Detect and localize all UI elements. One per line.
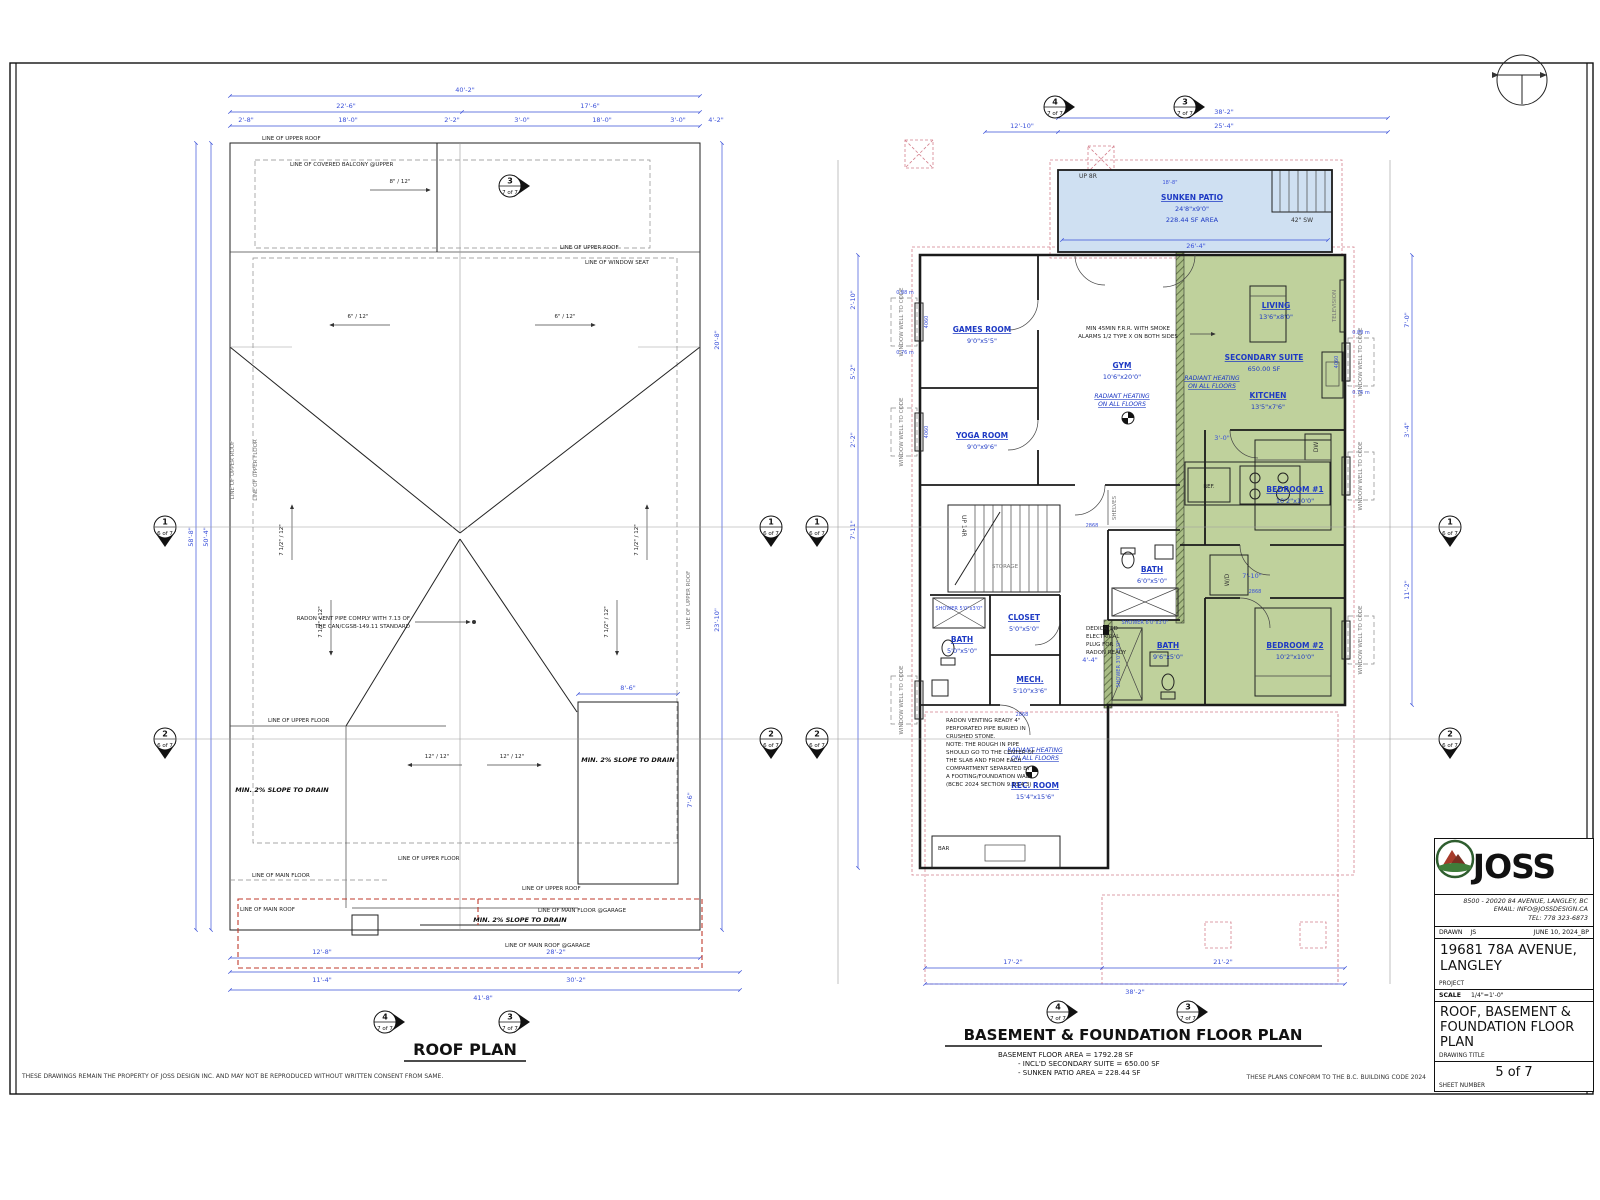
svg-text:2: 2 xyxy=(768,730,774,739)
svg-text:0.76 m: 0.76 m xyxy=(896,350,914,356)
section-marker: 16 of 7 xyxy=(154,516,176,547)
svg-text:3: 3 xyxy=(507,177,513,186)
svg-text:9'6"x5'0": 9'6"x5'0" xyxy=(1153,653,1183,661)
title-block: JOSS 8500 - 20020 84 AVENUE, LANGLEY, BC… xyxy=(1434,838,1594,1092)
svg-text:21'-2": 21'-2" xyxy=(1213,958,1233,966)
svg-text:DW: DW xyxy=(1313,442,1320,453)
basement-area-note: - SUNKEN PATIO AREA = 228.44 SF xyxy=(1018,1069,1141,1077)
svg-text:WINDOW WELL TO CODE: WINDOW WELL TO CODE xyxy=(899,665,905,735)
svg-text:25'-4": 25'-4" xyxy=(1214,122,1234,130)
basement-plan-title: BASEMENT & FOUNDATION FLOOR PLAN xyxy=(964,1026,1303,1044)
svg-text:BEDROOM #2: BEDROOM #2 xyxy=(1266,641,1323,650)
svg-text:MIN. 2% SLOPE TO DRAIN: MIN. 2% SLOPE TO DRAIN xyxy=(581,756,675,764)
stairs: UP 14R STORAGE xyxy=(948,505,1060,592)
svg-text:4'-4": 4'-4" xyxy=(1082,656,1097,664)
svg-text:6 of 7: 6 of 7 xyxy=(809,743,825,749)
up8r-label: UP 8R xyxy=(1079,173,1097,180)
svg-text:7 1/2" / 12": 7 1/2" / 12" xyxy=(279,524,285,556)
drain-symbol xyxy=(1122,412,1134,424)
svg-text:RADIANT HEATING: RADIANT HEATING xyxy=(1094,393,1150,400)
svg-text:6" / 12": 6" / 12" xyxy=(555,314,576,320)
svg-text:6 of 7: 6 of 7 xyxy=(1442,531,1458,537)
drawing-title: ROOF, BASEMENT & FOUNDATION FLOOR PLAN xyxy=(1440,1006,1588,1051)
svg-text:7'-10": 7'-10" xyxy=(1242,572,1262,580)
svg-text:LINE OF UPPER ROOF: LINE OF UPPER ROOF xyxy=(522,886,581,892)
section-marker: 47 of 7 xyxy=(1044,96,1075,118)
svg-text:3: 3 xyxy=(1185,1003,1191,1012)
svg-text:LINE OF MAIN FLOOR: LINE OF MAIN FLOOR xyxy=(252,873,310,879)
svg-text:SHOWER 6'0"x3'0": SHOWER 6'0"x3'0" xyxy=(1121,620,1168,626)
address-line: EMAIL: INFO@JOSSDESIGN.CA xyxy=(1440,906,1588,915)
svg-text:YOGA ROOM: YOGA ROOM xyxy=(955,431,1008,440)
svg-text:10'6"x20'0": 10'6"x20'0" xyxy=(1103,373,1141,381)
svg-text:10'2"x10'0": 10'2"x10'0" xyxy=(1276,497,1314,505)
svg-text:7 of 7: 7 of 7 xyxy=(502,1026,518,1032)
svg-text:0.88 m: 0.88 m xyxy=(896,290,914,296)
svg-text:15'4"x15'6": 15'4"x15'6" xyxy=(1016,793,1054,801)
svg-text:7 of 7: 7 of 7 xyxy=(502,190,518,196)
scale-row: SCALE 1/4"=1'-0" xyxy=(1435,990,1593,1003)
svg-text:11'-4": 11'-4" xyxy=(312,976,332,984)
svg-text:41'-8": 41'-8" xyxy=(473,994,493,1002)
svg-text:WINDOW WELL TO CODE: WINDOW WELL TO CODE xyxy=(899,397,905,467)
svg-text:WINDOW WELL TO CODE: WINDOW WELL TO CODE xyxy=(1358,605,1364,675)
svg-text:ALARMS 1/2 TYPE X ON BOTH SIDE: ALARMS 1/2 TYPE X ON BOTH SIDES xyxy=(1078,334,1178,340)
svg-text:LINE OF MAIN ROOF @GARAGE: LINE OF MAIN ROOF @GARAGE xyxy=(505,943,591,949)
svg-text:3'-4": 3'-4" xyxy=(1403,422,1411,437)
svg-text:650.00 SF: 650.00 SF xyxy=(1248,365,1281,373)
svg-text:40'-2": 40'-2" xyxy=(455,86,475,94)
section-marker: 37 of 7 xyxy=(499,1011,530,1033)
date-value: JUNE 10, 2024_BP xyxy=(1534,929,1589,936)
svg-text:7 of 7: 7 of 7 xyxy=(1050,1016,1066,1022)
svg-text:1: 1 xyxy=(1447,518,1453,527)
project-label: PROJECT xyxy=(1439,981,1464,987)
svg-text:7'-11": 7'-11" xyxy=(849,520,857,540)
svg-text:SUNKEN PATIO: SUNKEN PATIO xyxy=(1161,193,1223,202)
svg-text:26'-4": 26'-4" xyxy=(1186,242,1206,250)
svg-text:BAR: BAR xyxy=(938,846,950,852)
svg-text:LINE OF UPPER FLOOR: LINE OF UPPER FLOOR xyxy=(268,718,330,724)
scale-label: SCALE xyxy=(1439,992,1461,999)
svg-text:MECH.: MECH. xyxy=(1016,675,1043,684)
svg-text:12" / 12": 12" / 12" xyxy=(425,754,449,760)
section-marker: 26 of 7 xyxy=(760,728,782,759)
svg-text:LIVING: LIVING xyxy=(1262,301,1291,310)
section-marker: 16 of 7 xyxy=(1439,516,1461,547)
svg-text:THE SLAB AND FROM EACH: THE SLAB AND FROM EACH xyxy=(945,758,1021,764)
section-marker: 37 of 7 xyxy=(1174,96,1205,118)
sheet-frame xyxy=(10,63,1593,1094)
roof-slopes: 8" / 12" 6" / 12" 6" / 12" 7 1/2" / 12" … xyxy=(279,179,647,765)
roof-plan-title: ROOF PLAN xyxy=(413,1040,517,1059)
svg-text:BATH: BATH xyxy=(1157,641,1179,650)
svg-text:2'-8": 2'-8" xyxy=(238,116,253,124)
scale-value: 1/4"=1'-0" xyxy=(1471,992,1504,999)
project-address: 19681 78A AVENUE, LANGLEY xyxy=(1440,943,1588,974)
svg-text:BATH: BATH xyxy=(951,635,973,644)
section-marker: 37 of 7 xyxy=(499,175,530,197)
svg-text:THE CAN/CGSB-149.11 STANDARD: THE CAN/CGSB-149.11 STANDARD xyxy=(314,624,410,630)
svg-text:REF.: REF. xyxy=(1203,484,1215,490)
svg-text:7 of 7: 7 of 7 xyxy=(1177,111,1193,117)
svg-text:ON ALL FLOORS: ON ALL FLOORS xyxy=(1098,401,1146,408)
svg-text:12'-8": 12'-8" xyxy=(312,948,332,956)
svg-text:2'-2": 2'-2" xyxy=(849,432,857,447)
joss-logo-icon xyxy=(1435,839,1475,879)
svg-text:28'-2": 28'-2" xyxy=(546,948,566,956)
svg-text:MIN. 2% SLOPE TO DRAIN: MIN. 2% SLOPE TO DRAIN xyxy=(235,786,329,794)
svg-text:MIN 45MIN F.R.R. WITH SMOKE: MIN 45MIN F.R.R. WITH SMOKE xyxy=(1086,326,1170,332)
drawing-title-label: DRAWING TITLE xyxy=(1439,1053,1485,1059)
svg-text:LINE OF MAIN FLOOR @GARAGE: LINE OF MAIN FLOOR @GARAGE xyxy=(538,908,627,914)
svg-text:7'-6": 7'-6" xyxy=(686,792,694,807)
svg-text:LINE OF UPPER ROOF: LINE OF UPPER ROOF xyxy=(560,245,619,251)
svg-text:3'-0": 3'-0" xyxy=(1214,434,1229,442)
svg-text:18'-0": 18'-0" xyxy=(592,116,612,124)
ownership-disclaimer: THESE DRAWINGS REMAIN THE PROPERTY OF JO… xyxy=(21,1073,443,1080)
svg-text:6'0"x5'0": 6'0"x5'0" xyxy=(1137,577,1167,585)
svg-text:18'-8": 18'-8" xyxy=(1162,180,1177,186)
section-marker: 26 of 7 xyxy=(1439,728,1461,759)
svg-text:CLOSET: CLOSET xyxy=(1008,613,1041,622)
svg-text:(BCBC 2024 SECTION 9.13.4.3): (BCBC 2024 SECTION 9.13.4.3) xyxy=(946,782,1032,788)
svg-text:COMPARTMENT SEPARATED BY: COMPARTMENT SEPARATED BY xyxy=(946,766,1031,772)
svg-text:7 1/2" / 12": 7 1/2" / 12" xyxy=(634,524,640,556)
svg-text:50'-4": 50'-4" xyxy=(202,527,210,547)
drawn-row: DRAWN JS JUNE 10, 2024_BP xyxy=(1435,927,1593,940)
svg-text:LINE OF UPPER FLOOR: LINE OF UPPER FLOOR xyxy=(398,856,460,862)
svg-text:13'5"x7'6": 13'5"x7'6" xyxy=(1251,403,1285,411)
svg-text:LINE OF WINDOW SEAT: LINE OF WINDOW SEAT xyxy=(585,260,649,266)
svg-text:6 of 7: 6 of 7 xyxy=(809,531,825,537)
svg-text:8" / 12": 8" / 12" xyxy=(390,179,411,185)
project-row: 19681 78A AVENUE, LANGLEY PROJECT xyxy=(1435,939,1593,989)
svg-text:5'-2": 5'-2" xyxy=(849,364,857,379)
svg-text:4: 4 xyxy=(382,1013,388,1022)
logo-row: JOSS xyxy=(1435,839,1593,895)
svg-text:3'-0": 3'-0" xyxy=(670,116,685,124)
svg-text:LINE OF UPPER ROOF: LINE OF UPPER ROOF xyxy=(262,136,321,142)
svg-text:GYM: GYM xyxy=(1113,361,1132,370)
svg-text:LINE OF MAIN ROOF: LINE OF MAIN ROOF xyxy=(240,907,295,913)
svg-text:22'-6": 22'-6" xyxy=(336,102,356,110)
drawn-label: DRAWN xyxy=(1439,929,1462,936)
svg-text:20'-8": 20'-8" xyxy=(713,330,721,350)
drawn-value: JS xyxy=(1470,929,1476,936)
svg-text:A FOOTING/FOUNDATION WALL.: A FOOTING/FOUNDATION WALL. xyxy=(946,774,1034,780)
svg-text:6 of 7: 6 of 7 xyxy=(1442,743,1458,749)
svg-text:17'-2": 17'-2" xyxy=(1003,958,1023,966)
section-marker: 37 of 7 xyxy=(1177,1001,1208,1023)
svg-text:KITCHEN: KITCHEN xyxy=(1250,391,1287,400)
svg-text:9'0"x5'5": 9'0"x5'5" xyxy=(967,337,997,345)
svg-text:DEDICATED: DEDICATED xyxy=(1086,626,1118,632)
svg-text:SHOULD GO TO THE CENTER OF: SHOULD GO TO THE CENTER OF xyxy=(946,750,1035,756)
svg-text:4060: 4060 xyxy=(1334,356,1340,369)
basement-area-note: - INCL'D SECONDARY SUITE = 650.00 SF xyxy=(1018,1060,1160,1068)
svg-text:STORAGE: STORAGE xyxy=(992,564,1019,570)
svg-text:58'-8": 58'-8" xyxy=(187,527,195,547)
svg-text:SECONDARY SUITE: SECONDARY SUITE xyxy=(1225,353,1304,362)
svg-text:7 of 7: 7 of 7 xyxy=(1047,111,1063,117)
svg-text:BATH: BATH xyxy=(1141,565,1163,574)
svg-text:3: 3 xyxy=(507,1013,513,1022)
svg-text:6 of 7: 6 of 7 xyxy=(763,743,779,749)
svg-text:ELECTRICAL: ELECTRICAL xyxy=(1086,634,1120,640)
svg-text:8'-6": 8'-6" xyxy=(620,684,635,692)
basement-notes: MIN 45MIN F.R.R. WITH SMOKE ALARMS 1/2 T… xyxy=(945,326,1215,788)
svg-text:1: 1 xyxy=(162,518,168,527)
plan-canvas: 40'-2" 22'-6" 17'-6" 2'-8" 18'-0" 2'-2" … xyxy=(0,0,1600,1200)
roof-outline xyxy=(230,143,702,968)
sunken-patio: UP 8R 42" SW SUNKEN PATIO 24'8"x9'0" 228… xyxy=(1058,170,1332,252)
address-line: TEL: 778 323-6873 xyxy=(1440,915,1588,924)
svg-text:2868: 2868 xyxy=(1249,589,1262,595)
firm-address: 8500 - 20020 84 AVENUE, LANGLEY, BC EMAI… xyxy=(1435,895,1593,927)
svg-text:LINE OF UPPER FLOOR: LINE OF UPPER FLOOR xyxy=(253,439,259,501)
svg-text:RADON VENT PIPE COMPLY WITH 7.: RADON VENT PIPE COMPLY WITH 7.13 OF xyxy=(297,616,410,622)
svg-text:4: 4 xyxy=(1052,98,1058,107)
svg-text:RADON VENTING READY 4": RADON VENTING READY 4" xyxy=(946,718,1020,724)
section-marker: 47 of 7 xyxy=(374,1011,405,1033)
svg-text:WINDOW WELL TO CODE: WINDOW WELL TO CODE xyxy=(1358,441,1364,511)
basement-plan: UP 8R 42" SW SUNKEN PATIO 24'8"x9'0" 228… xyxy=(838,108,1412,1077)
svg-text:3'-0": 3'-0" xyxy=(514,116,529,124)
drawing-sheet: { "sheet": { "disclaimer": "THESE DRAWIN… xyxy=(0,0,1600,1200)
svg-text:W/D: W/D xyxy=(1224,573,1231,586)
section-marker: 16 of 7 xyxy=(806,516,828,547)
svg-text:1: 1 xyxy=(814,518,820,527)
svg-text:SHELVES: SHELVES xyxy=(1112,495,1118,520)
svg-text:4060: 4060 xyxy=(924,316,930,329)
brand-name: JOSS xyxy=(1473,847,1555,886)
svg-text:3: 3 xyxy=(1182,98,1188,107)
roof-plan: 40'-2" 22'-6" 17'-6" 2'-8" 18'-0" 2'-2" … xyxy=(187,86,740,1061)
svg-text:WINDOW WELL TO CODE: WINDOW WELL TO CODE xyxy=(899,287,905,357)
svg-text:GAMES ROOM: GAMES ROOM xyxy=(953,325,1012,334)
svg-text:10'2"x10'0": 10'2"x10'0" xyxy=(1276,653,1314,661)
svg-text:BEDROOM #1: BEDROOM #1 xyxy=(1266,485,1323,494)
drawing-title-row: ROOF, BASEMENT & FOUNDATION FLOOR PLAN D… xyxy=(1435,1002,1593,1062)
sheet-number-label: SHEET NUMBER xyxy=(1439,1083,1485,1089)
svg-text:4'-2": 4'-2" xyxy=(708,116,723,124)
svg-text:2'-10": 2'-10" xyxy=(849,290,857,310)
svg-text:24'8"x9'0": 24'8"x9'0" xyxy=(1175,205,1209,213)
svg-text:38'-2": 38'-2" xyxy=(1214,108,1234,116)
section-marker: 26 of 7 xyxy=(154,728,176,759)
sw42-label: 42" SW xyxy=(1291,217,1313,224)
svg-text:7'-0": 7'-0" xyxy=(1403,312,1411,327)
svg-text:LINE OF COVERED BALCONY @UPPER: LINE OF COVERED BALCONY @UPPER xyxy=(290,162,393,168)
svg-text:9'0"x9'6": 9'0"x9'6" xyxy=(967,443,997,451)
svg-text:2'-2": 2'-2" xyxy=(444,116,459,124)
svg-text:4: 4 xyxy=(1055,1003,1061,1012)
svg-text:30'-2": 30'-2" xyxy=(566,976,586,984)
svg-text:228.44 SF AREA: 228.44 SF AREA xyxy=(1166,216,1219,224)
secondary-suite-area xyxy=(1108,255,1345,705)
svg-text:2: 2 xyxy=(814,730,820,739)
svg-text:SHOWER 5'0"x3'0": SHOWER 5'0"x3'0" xyxy=(935,606,982,612)
svg-text:23'-10": 23'-10" xyxy=(713,608,721,632)
svg-text:MIN. 2% SLOPE TO DRAIN: MIN. 2% SLOPE TO DRAIN xyxy=(473,916,567,924)
svg-text:5'10"x3'6": 5'10"x3'6" xyxy=(1013,687,1047,695)
section-marker: 47 of 7 xyxy=(1047,1001,1078,1023)
svg-text:13'6"x8'0": 13'6"x8'0" xyxy=(1259,313,1293,321)
svg-text:38'-2": 38'-2" xyxy=(1125,988,1145,996)
svg-text:6" / 12": 6" / 12" xyxy=(348,314,369,320)
svg-text:6 of 7: 6 of 7 xyxy=(763,531,779,537)
svg-text:7 of 7: 7 of 7 xyxy=(377,1026,393,1032)
svg-text:2: 2 xyxy=(162,730,168,739)
svg-text:12'-10": 12'-10" xyxy=(1010,122,1034,130)
svg-text:0.76 m: 0.76 m xyxy=(1352,390,1370,396)
svg-text:RADIANT HEATING: RADIANT HEATING xyxy=(1184,375,1240,382)
svg-text:2: 2 xyxy=(1447,730,1453,739)
svg-text:0.88 m: 0.88 m xyxy=(1352,330,1370,336)
code-conformance-note: THESE PLANS CONFORM TO THE B.C. BUILDING… xyxy=(1246,1074,1427,1081)
basement-area-note: BASEMENT FLOOR AREA = 1792.28 SF xyxy=(998,1051,1133,1059)
sheet-number: 5 of 7 xyxy=(1435,1065,1593,1080)
svg-text:PERFORATED PIPE BURIED IN: PERFORATED PIPE BURIED IN xyxy=(946,726,1026,732)
section-marker: 26 of 7 xyxy=(806,728,828,759)
svg-text:4060: 4060 xyxy=(924,426,930,439)
svg-text:WINDOW WELL TO CODE: WINDOW WELL TO CODE xyxy=(1358,327,1364,397)
svg-text:PLUG FOR: PLUG FOR xyxy=(1086,642,1114,648)
svg-text:ON ALL FLOORS: ON ALL FLOORS xyxy=(1188,383,1236,390)
svg-text:12" / 12": 12" / 12" xyxy=(500,754,524,760)
svg-text:7 of 7: 7 of 7 xyxy=(1180,1016,1196,1022)
svg-text:1: 1 xyxy=(768,518,774,527)
svg-text:5'0"x5'0": 5'0"x5'0" xyxy=(947,647,977,655)
svg-text:TELEVISION: TELEVISION xyxy=(1332,290,1338,323)
svg-text:6 of 7: 6 of 7 xyxy=(157,743,173,749)
svg-text:2868: 2868 xyxy=(1086,523,1099,529)
svg-text:7 1/2" / 12": 7 1/2" / 12" xyxy=(604,606,610,638)
svg-text:7 1/2" / 12": 7 1/2" / 12" xyxy=(318,606,324,638)
svg-text:UP 14R: UP 14R xyxy=(960,515,967,537)
svg-text:LINE OF UPPER ROOF: LINE OF UPPER ROOF xyxy=(686,571,692,630)
svg-text:11'-2": 11'-2" xyxy=(1403,580,1411,600)
section-marker: 16 of 7 xyxy=(760,516,782,547)
svg-text:NOTE: THE ROUGH IN PIPE: NOTE: THE ROUGH IN PIPE xyxy=(946,742,1020,748)
svg-text:17'-6": 17'-6" xyxy=(580,102,600,110)
svg-text:6 of 7: 6 of 7 xyxy=(157,531,173,537)
svg-text:LINE OF UPPER ROOF: LINE OF UPPER ROOF xyxy=(230,441,236,500)
svg-text:SHOWER 3'0"x5'0": SHOWER 3'0"x5'0" xyxy=(1116,640,1122,687)
sheet-number-row: 5 of 7 SHEET NUMBER xyxy=(1435,1062,1593,1091)
svg-text:5'0"x5'0": 5'0"x5'0" xyxy=(1009,625,1039,633)
svg-text:18'-0": 18'-0" xyxy=(338,116,358,124)
